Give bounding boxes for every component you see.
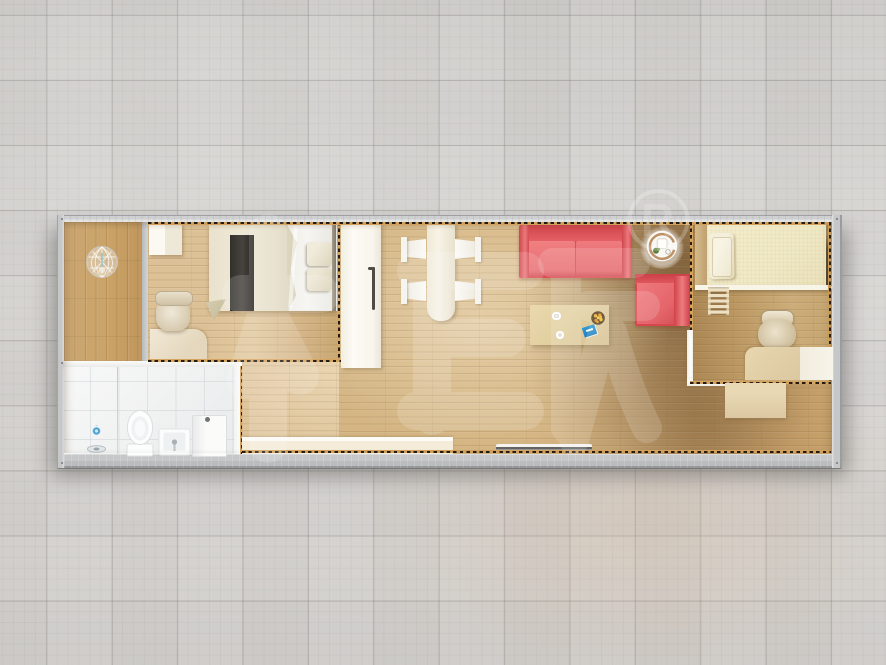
svg-text:R: R	[641, 194, 674, 246]
